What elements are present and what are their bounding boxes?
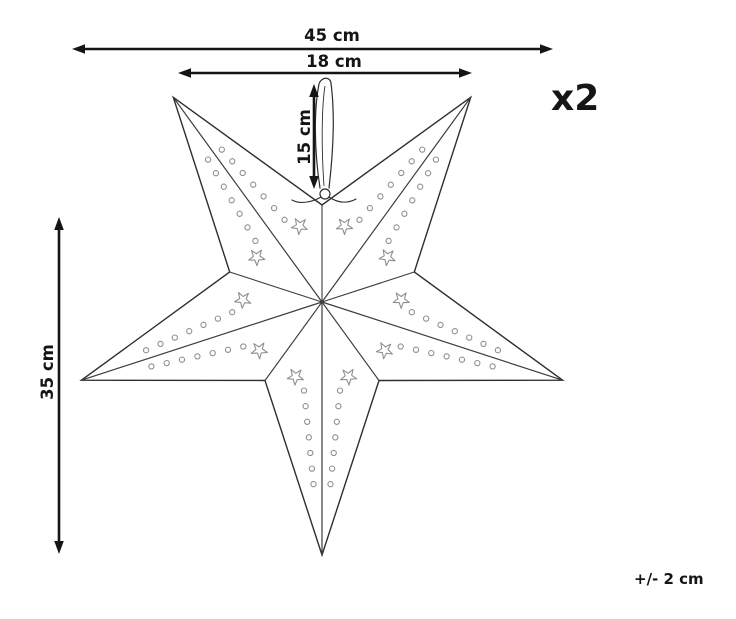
paper-star bbox=[81, 97, 562, 555]
product-dimension-diagram: 45 cm 18 cm 15 cm 35 cm x2 +/- 2 cm bbox=[0, 0, 736, 619]
arrowhead-icon bbox=[309, 176, 319, 189]
diagram-canvas: 45 cm 18 cm 15 cm 35 cm bbox=[0, 0, 736, 619]
arrowhead-icon bbox=[540, 44, 553, 54]
arrowhead-icon bbox=[54, 217, 64, 230]
tolerance-label: +/- 2 cm bbox=[634, 569, 704, 590]
quantity-label: x2 bbox=[551, 81, 599, 117]
dimension-label-top-points-width: 18 cm bbox=[306, 52, 362, 71]
dimension-label-star-height: 35 cm bbox=[38, 344, 57, 400]
arrowhead-icon bbox=[54, 541, 64, 554]
dimension-label-overall-width: 45 cm bbox=[304, 26, 360, 45]
arrowhead-icon bbox=[459, 68, 472, 78]
ribbon-knot bbox=[320, 189, 330, 199]
arrowhead-icon bbox=[72, 44, 85, 54]
dimension-label-loop-length: 15 cm bbox=[295, 109, 314, 165]
ribbon-loop-crease bbox=[322, 86, 325, 186]
arrowhead-icon bbox=[178, 68, 191, 78]
